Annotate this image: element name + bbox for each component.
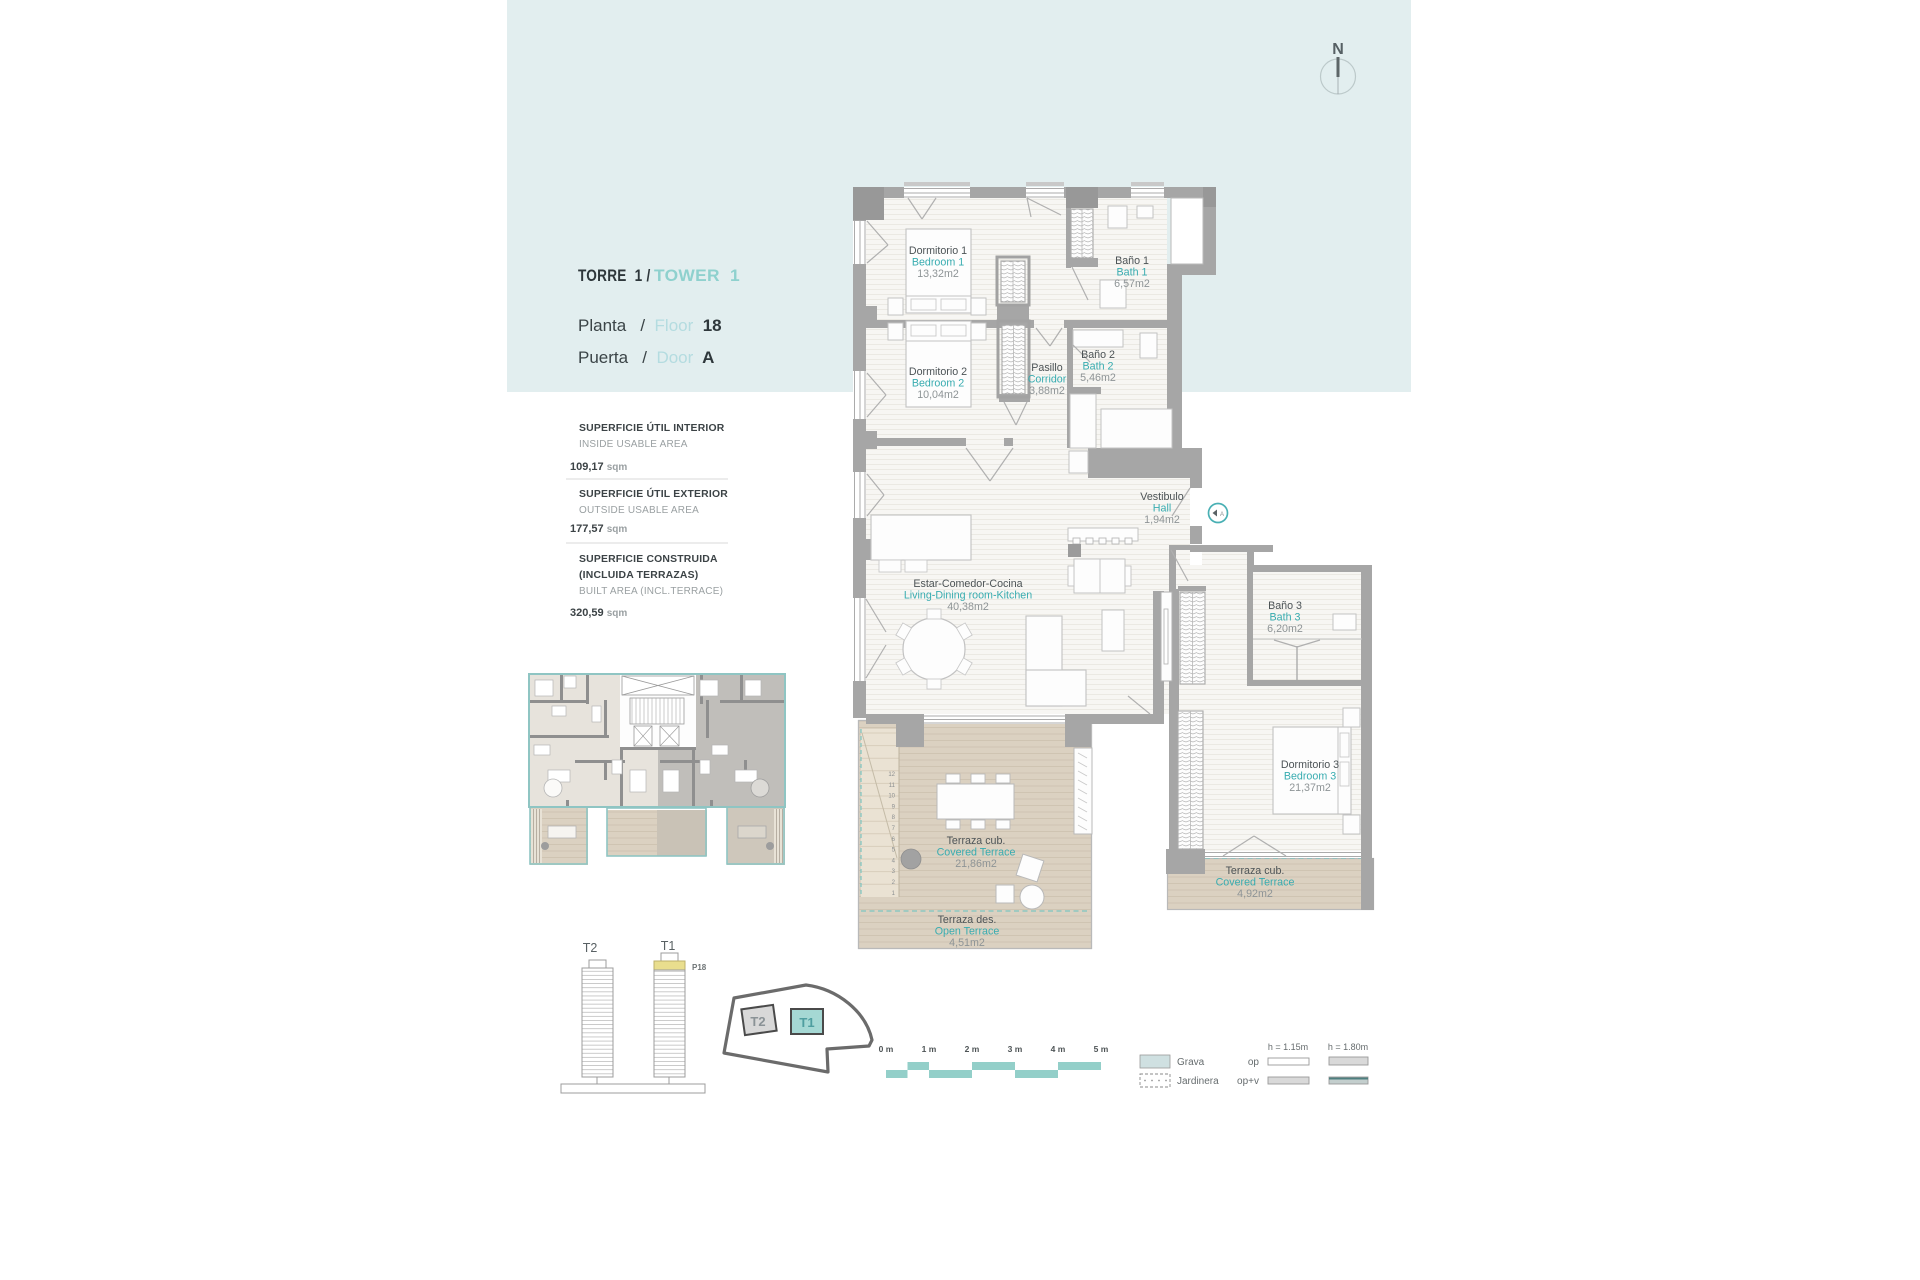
svg-text:Puerta / Door A: Puerta / Door A xyxy=(578,348,714,367)
svg-text:Terraza cub.: Terraza cub. xyxy=(947,835,1006,847)
svg-text:4,92m2: 4,92m2 xyxy=(1237,888,1273,900)
svg-text:SUPERFICIE CONSTRUIDA: SUPERFICIE CONSTRUIDA xyxy=(579,554,718,565)
svg-text:109,17 sqm: 109,17 sqm xyxy=(570,461,627,473)
svg-text:Covered Terrace: Covered Terrace xyxy=(1216,877,1295,889)
svg-text:h = 1.80m: h = 1.80m xyxy=(1328,1042,1368,1052)
svg-text:177,57 sqm: 177,57 sqm xyxy=(570,523,627,535)
svg-text:(INCLUIDA TERRAZAS): (INCLUIDA TERRAZAS) xyxy=(579,570,698,581)
svg-text:5 m: 5 m xyxy=(1094,1044,1109,1054)
svg-text:T2: T2 xyxy=(750,1014,765,1029)
svg-text:4,51m2: 4,51m2 xyxy=(949,937,985,949)
svg-text:BUILT AREA (INCL.TERRACE): BUILT AREA (INCL.TERRACE) xyxy=(579,586,723,597)
svg-text:P18: P18 xyxy=(692,963,707,972)
svg-text:Bedroom 3: Bedroom 3 xyxy=(1284,771,1336,783)
svg-text:op: op xyxy=(1248,1057,1260,1068)
svg-text:Baño 2: Baño 2 xyxy=(1081,349,1115,361)
svg-text:Terraza des.: Terraza des. xyxy=(938,914,997,926)
svg-text:3,88m2: 3,88m2 xyxy=(1029,385,1065,397)
svg-text:1,94m2: 1,94m2 xyxy=(1144,514,1180,526)
svg-text:TORRE 1 /: TORRE 1 / xyxy=(578,266,651,285)
svg-text:6,20m2: 6,20m2 xyxy=(1267,623,1303,635)
svg-text:21,86m2: 21,86m2 xyxy=(955,858,997,870)
svg-text:320,59 sqm: 320,59 sqm xyxy=(570,607,627,619)
svg-text:N: N xyxy=(1332,41,1344,58)
svg-text:Living-Dining room-Kitchen: Living-Dining room-Kitchen xyxy=(904,590,1032,602)
svg-text:10,04m2: 10,04m2 xyxy=(917,389,959,401)
svg-text:11: 11 xyxy=(889,783,896,789)
svg-text:Estar-Comedor-Cocina: Estar-Comedor-Cocina xyxy=(913,578,1022,590)
svg-text:Vestibulo: Vestibulo xyxy=(1140,491,1183,503)
svg-text:40,38m2: 40,38m2 xyxy=(947,601,989,613)
svg-text:4 m: 4 m xyxy=(1051,1044,1066,1054)
svg-text:INSIDE USABLE AREA: INSIDE USABLE AREA xyxy=(579,439,688,450)
svg-text:Planta / Floor 18: Planta / Floor 18 xyxy=(578,316,722,335)
svg-text:Open Terrace: Open Terrace xyxy=(935,926,1000,938)
svg-text:13,32m2: 13,32m2 xyxy=(917,268,959,280)
svg-text:Bedroom 1: Bedroom 1 xyxy=(912,257,964,269)
svg-text:h = 1.15m: h = 1.15m xyxy=(1268,1042,1308,1052)
svg-text:Bath 1: Bath 1 xyxy=(1117,267,1148,279)
svg-text:10: 10 xyxy=(888,794,895,800)
svg-text:Corridor: Corridor xyxy=(1028,374,1067,386)
svg-text:TOWER 1: TOWER 1 xyxy=(654,266,740,285)
svg-text:3 m: 3 m xyxy=(1008,1044,1023,1054)
svg-text:0 m: 0 m xyxy=(879,1044,894,1054)
svg-text:Bath 2: Bath 2 xyxy=(1083,361,1114,373)
svg-text:A: A xyxy=(1220,512,1224,518)
svg-text:Covered Terrace: Covered Terrace xyxy=(937,847,1016,859)
svg-text:2 m: 2 m xyxy=(965,1044,980,1054)
svg-text:5,46m2: 5,46m2 xyxy=(1080,372,1116,384)
svg-text:Bath 3: Bath 3 xyxy=(1270,612,1301,624)
svg-text:Grava: Grava xyxy=(1177,1057,1205,1068)
svg-text:Terraza cub.: Terraza cub. xyxy=(1226,865,1285,877)
svg-text:T2: T2 xyxy=(583,941,598,955)
svg-text:Dormitorio 3: Dormitorio 3 xyxy=(1281,759,1339,771)
svg-text:Dormitorio 2: Dormitorio 2 xyxy=(909,366,967,378)
svg-text:Baño 3: Baño 3 xyxy=(1268,600,1302,612)
svg-text:12: 12 xyxy=(888,772,895,778)
svg-text:SUPERFICIE ÚTIL EXTERIOR: SUPERFICIE ÚTIL EXTERIOR xyxy=(579,487,728,500)
svg-text:Bedroom 2: Bedroom 2 xyxy=(912,378,964,390)
svg-text:6,57m2: 6,57m2 xyxy=(1114,278,1150,290)
svg-text:op+v: op+v xyxy=(1237,1076,1259,1087)
svg-text:1 m: 1 m xyxy=(922,1044,937,1054)
svg-text:Jardinera: Jardinera xyxy=(1177,1076,1219,1087)
svg-text:Pasillo: Pasillo xyxy=(1031,362,1063,374)
svg-text:SUPERFICIE ÚTIL INTERIOR: SUPERFICIE ÚTIL INTERIOR xyxy=(579,421,725,434)
svg-text:21,37m2: 21,37m2 xyxy=(1289,782,1331,794)
svg-text:T1: T1 xyxy=(661,939,676,953)
svg-text:Dormitorio 1: Dormitorio 1 xyxy=(909,245,967,257)
svg-text:Hall: Hall xyxy=(1153,503,1171,515)
svg-text:Baño 1: Baño 1 xyxy=(1115,255,1149,267)
svg-text:OUTSIDE USABLE AREA: OUTSIDE USABLE AREA xyxy=(579,505,699,516)
svg-text:T1: T1 xyxy=(799,1015,814,1030)
